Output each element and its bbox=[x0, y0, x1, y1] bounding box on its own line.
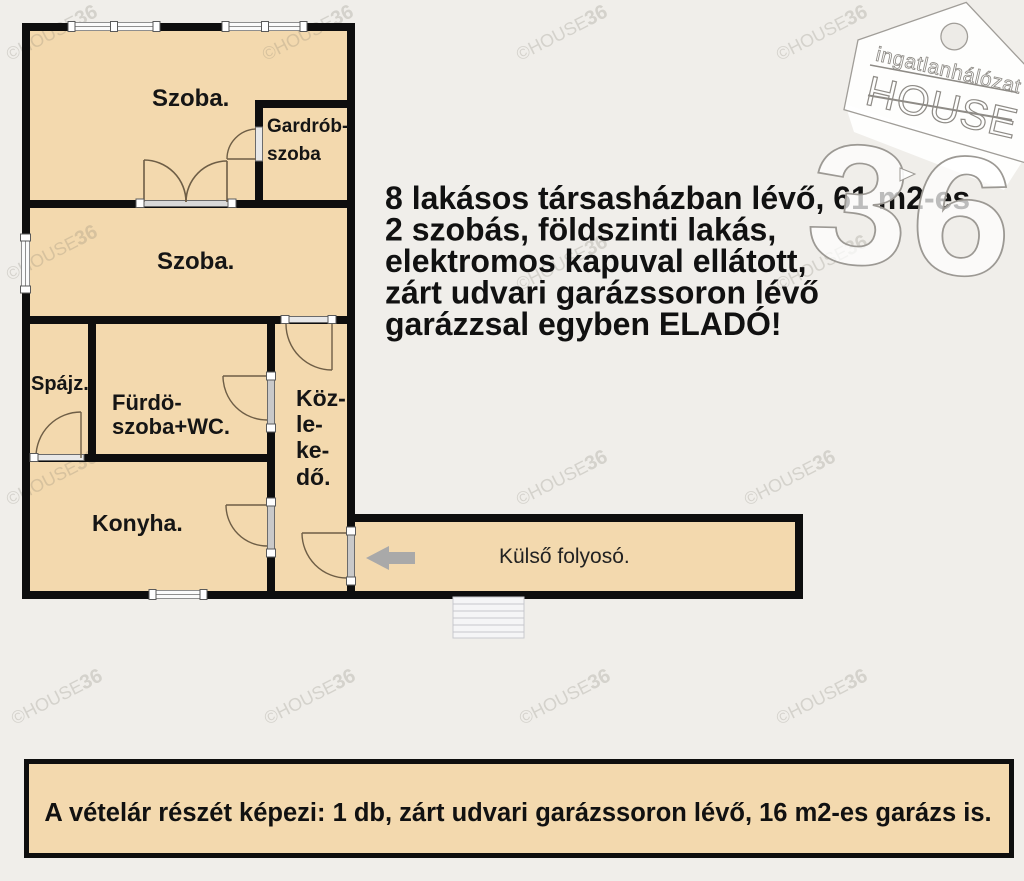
svg-text:Konyha.: Konyha. bbox=[92, 510, 183, 536]
svg-text:szoba: szoba bbox=[267, 144, 321, 165]
svg-text:dő.: dő. bbox=[296, 464, 331, 490]
svg-text:Külső folyosó.: Külső folyosó. bbox=[499, 545, 630, 568]
svg-text:Gardrób-: Gardrób- bbox=[267, 116, 348, 137]
svg-text:A vételár részét képezi: 1 db,: A vételár részét képezi: 1 db, zárt udva… bbox=[44, 799, 991, 827]
svg-text:Köz-: Köz- bbox=[296, 385, 346, 411]
svg-text:garázzsal egyben ELADÓ!: garázzsal egyben ELADÓ! bbox=[385, 306, 782, 342]
svg-text:le-: le- bbox=[296, 411, 323, 437]
svg-text:Spájz.: Spájz. bbox=[31, 373, 89, 395]
svg-text:Szoba.: Szoba. bbox=[157, 248, 234, 275]
svg-text:Fürdö-: Fürdö- bbox=[112, 390, 182, 415]
svg-text:Szoba.: Szoba. bbox=[152, 85, 229, 112]
svg-text:ke-: ke- bbox=[296, 437, 329, 463]
svg-text:szoba+WC.: szoba+WC. bbox=[112, 414, 230, 439]
